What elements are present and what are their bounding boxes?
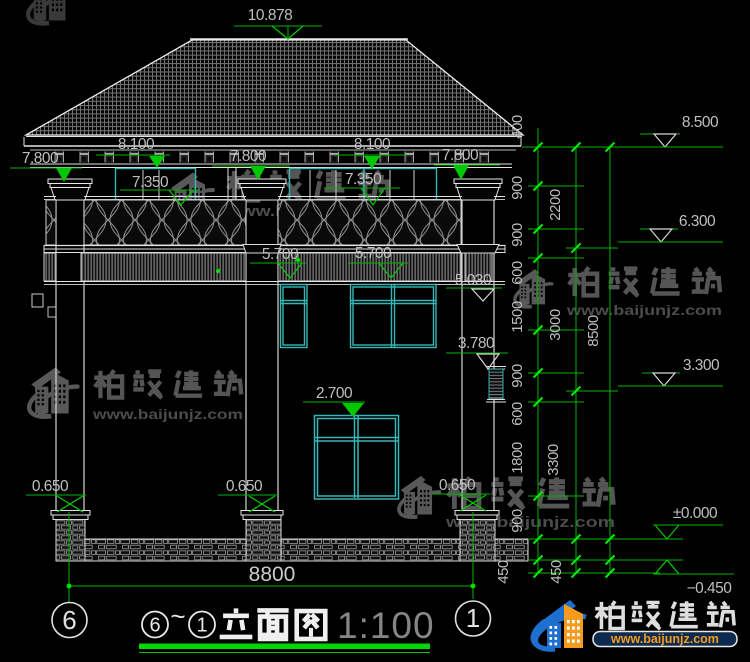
svg-text:8800: 8800 <box>249 563 296 586</box>
svg-text:3300: 3300 <box>545 444 562 476</box>
svg-text:1800: 1800 <box>509 442 526 474</box>
svg-text:900: 900 <box>509 509 526 533</box>
svg-text:~: ~ <box>170 601 185 631</box>
svg-text:3000: 3000 <box>547 309 564 341</box>
svg-text:3.300: 3.300 <box>683 357 720 374</box>
svg-text:6.300: 6.300 <box>679 213 716 230</box>
svg-text:400: 400 <box>509 115 526 139</box>
svg-text:900: 900 <box>509 176 526 200</box>
svg-text:0.650: 0.650 <box>439 477 476 494</box>
svg-text:5.030: 5.030 <box>455 272 492 289</box>
svg-text:10.878: 10.878 <box>248 7 292 24</box>
svg-text:0.650: 0.650 <box>226 478 263 495</box>
svg-text:±0.000: ±0.000 <box>673 505 718 522</box>
svg-text:7.800: 7.800 <box>442 147 479 164</box>
svg-text:5.700: 5.700 <box>355 245 392 262</box>
svg-text:450: 450 <box>495 560 512 584</box>
svg-text:6: 6 <box>62 605 76 635</box>
svg-text:900: 900 <box>509 364 526 388</box>
svg-text:2.700: 2.700 <box>316 385 353 402</box>
svg-text:www.baijunjz.com: www.baijunjz.com <box>92 406 243 422</box>
svg-text:7.800: 7.800 <box>22 150 59 167</box>
svg-text:5.700: 5.700 <box>262 246 299 263</box>
svg-text:1:100: 1:100 <box>337 605 435 646</box>
svg-text:1500: 1500 <box>509 301 526 333</box>
svg-text:8.500: 8.500 <box>682 114 719 131</box>
svg-text:7.350: 7.350 <box>345 171 382 188</box>
svg-text:3.780: 3.780 <box>458 335 495 352</box>
svg-text:0.650: 0.650 <box>32 478 69 495</box>
svg-text:8.100: 8.100 <box>118 136 155 153</box>
svg-text:7.800: 7.800 <box>230 148 267 165</box>
svg-text:900: 900 <box>509 223 526 247</box>
svg-text:1: 1 <box>466 603 480 633</box>
svg-text:8.100: 8.100 <box>354 136 391 153</box>
svg-text:6: 6 <box>149 615 160 637</box>
svg-text:2200: 2200 <box>547 189 564 221</box>
svg-text:600: 600 <box>509 402 526 426</box>
svg-text:8500: 8500 <box>585 315 602 347</box>
svg-text:450: 450 <box>548 560 565 584</box>
svg-text:7.350: 7.350 <box>132 174 169 191</box>
svg-text:600: 600 <box>509 261 526 285</box>
svg-text:www.baijunjz.com: www.baijunjz.com <box>610 632 719 646</box>
svg-text:1: 1 <box>196 615 207 637</box>
svg-text:−0.450: −0.450 <box>687 580 733 597</box>
